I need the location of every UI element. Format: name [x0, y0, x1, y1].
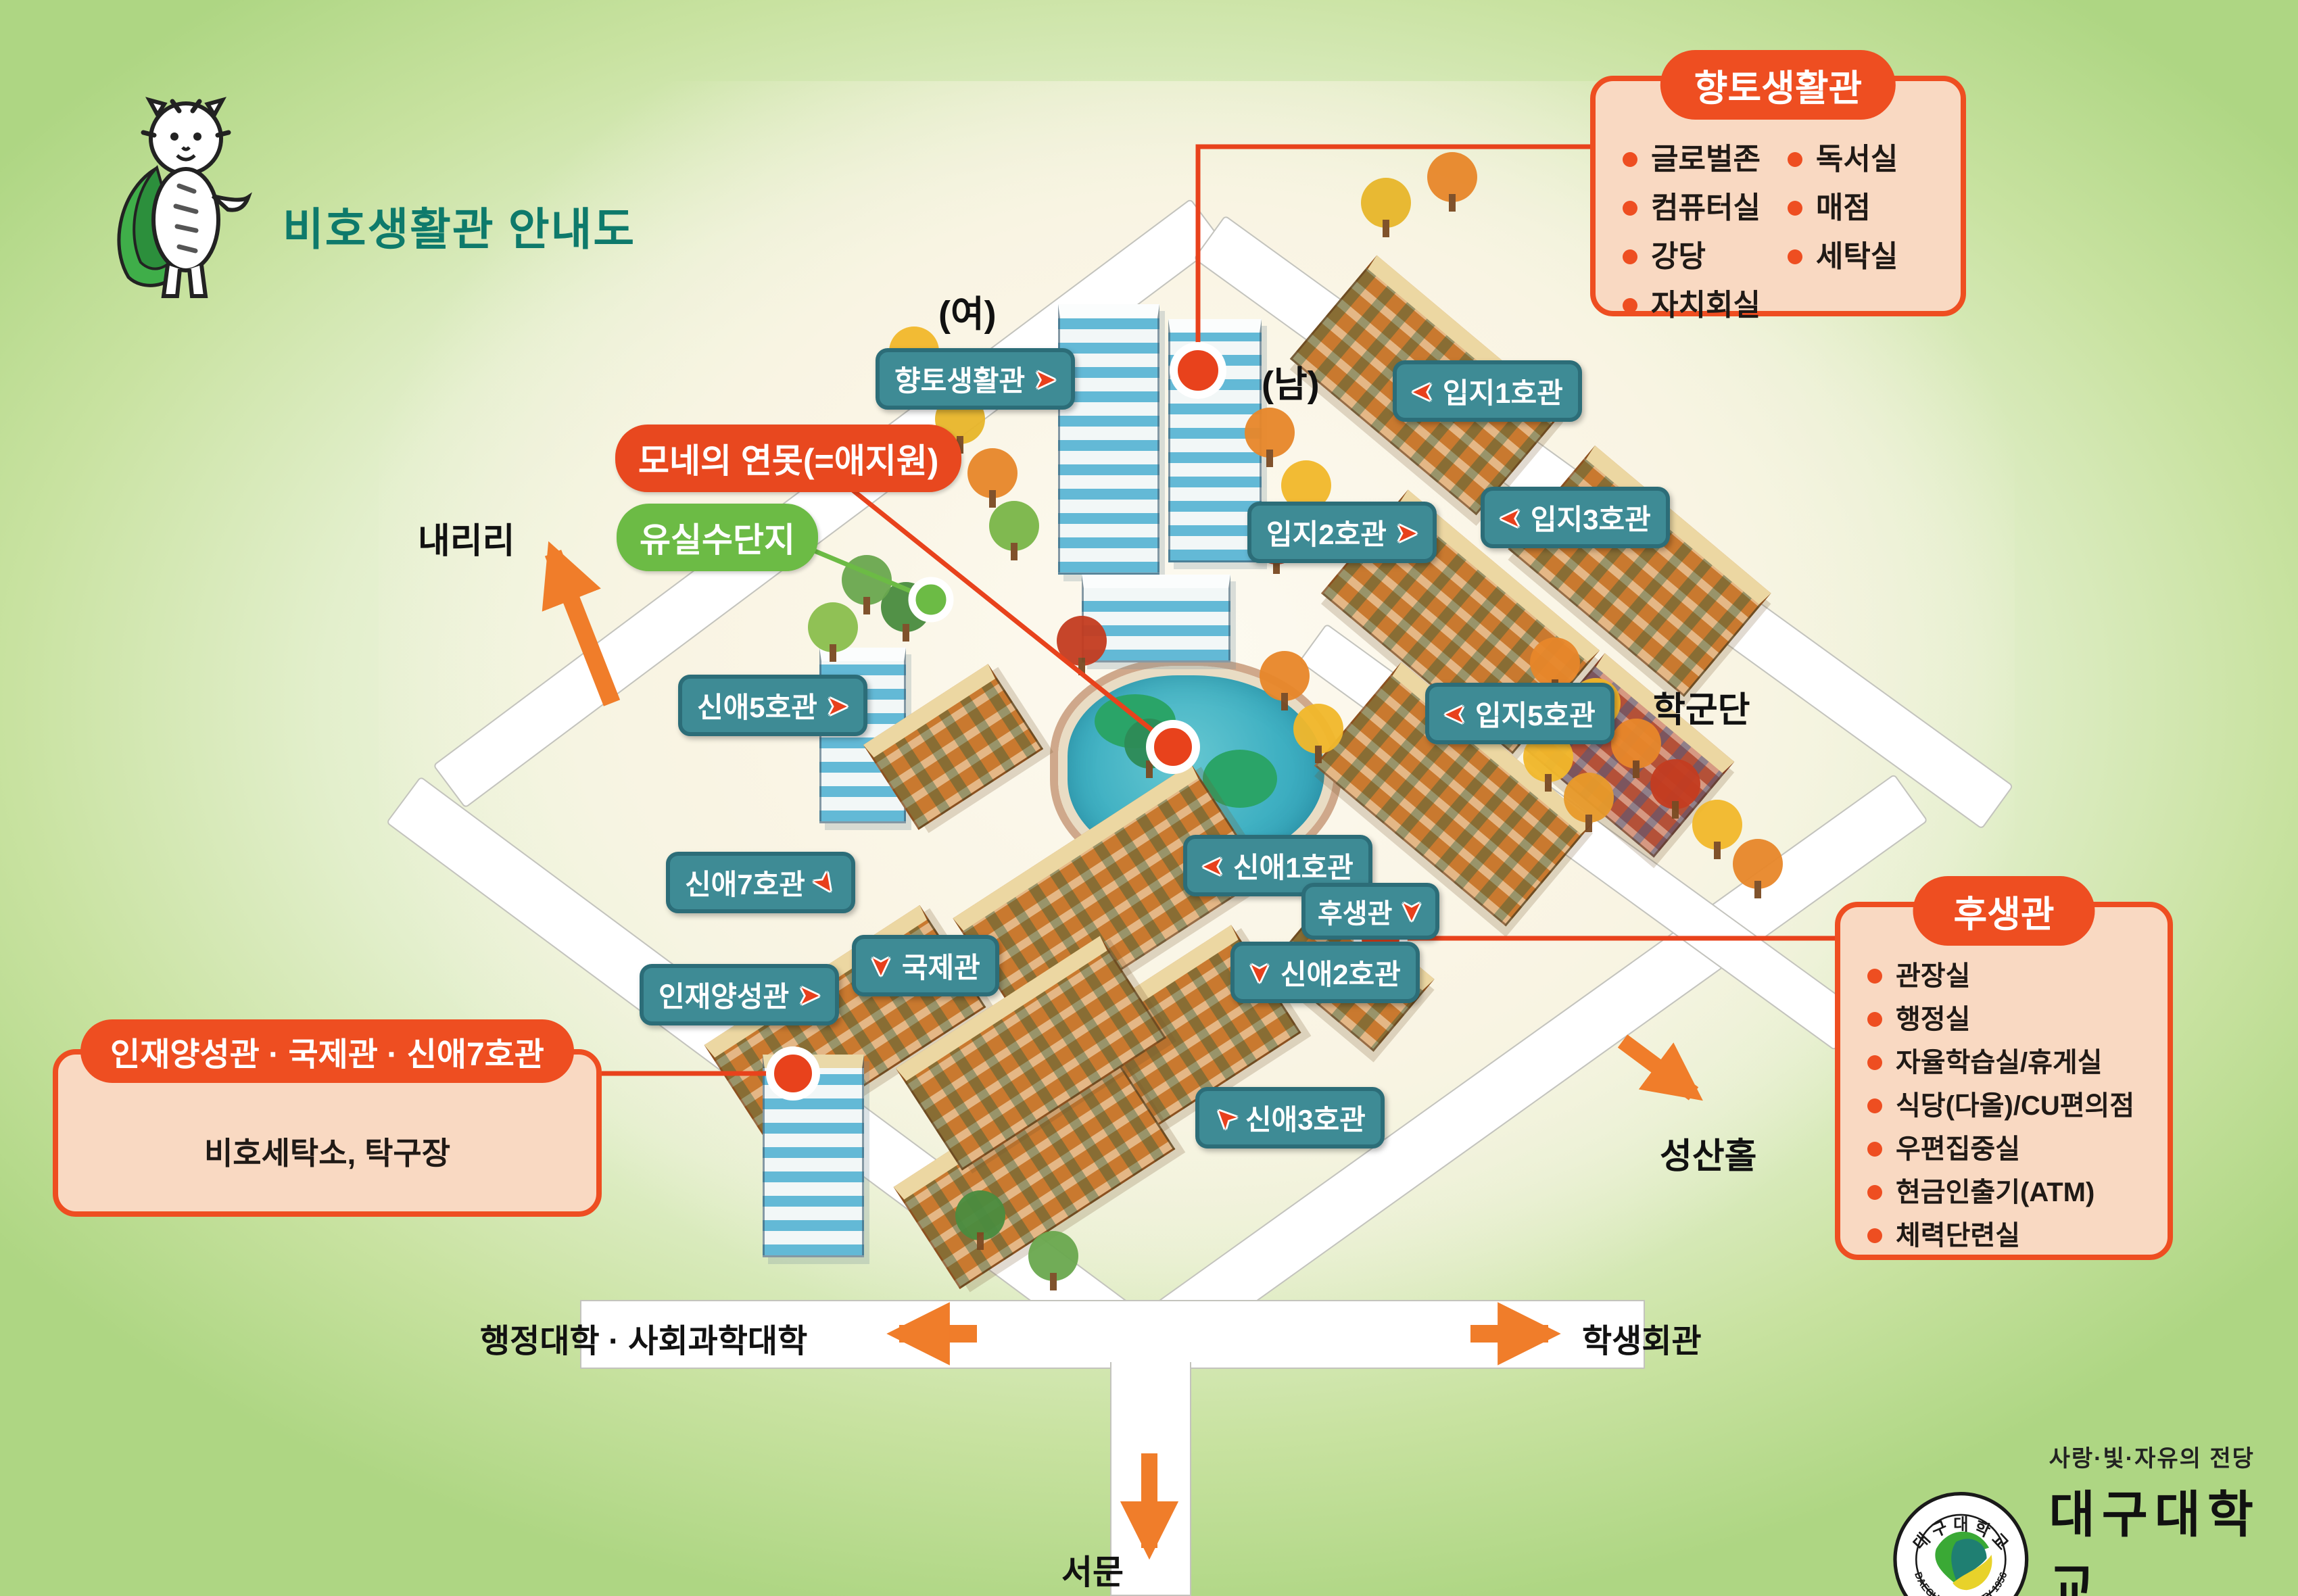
label-ipji1-text: 입지1호관: [1443, 370, 1563, 412]
pointer-down-icon: ➤: [869, 955, 894, 977]
university-logo: 대 구 대 학 교 DAEGU UNIVERSITY 1956 사랑·빛·자유의…: [1890, 1440, 2298, 1596]
label-hakgundan: 학군단: [1653, 681, 1750, 732]
dot-pond: [1150, 724, 1196, 770]
legend-item: 우편집중실: [1861, 1128, 2161, 1171]
legend-hyangto-title: 향토생활관: [1660, 50, 1896, 120]
legend-item: 행정실: [1861, 998, 2161, 1041]
pointer-right-icon: ➤: [1396, 520, 1418, 546]
label-sinae7-text: 신애7호관: [685, 862, 805, 903]
label-injae-text: 인재양성관: [659, 974, 789, 1015]
legend-item: 글로벌존: [1616, 135, 1761, 184]
legend-item: 자율학습실/휴게실: [1861, 1041, 2161, 1084]
pointer-down-icon: ➤: [1399, 900, 1425, 922]
pointer-left-icon: ➤: [1500, 505, 1521, 531]
pointer-right-icon: ➤: [798, 982, 820, 1008]
legend-item: 자치회실: [1616, 281, 1761, 330]
legend-item: 강당: [1616, 233, 1761, 281]
label-male: (남): [1262, 354, 1320, 408]
dot-hyangto: [1174, 346, 1222, 395]
label-hyangto: 향토생활관➤: [876, 348, 1075, 410]
label-sinae5-text: 신애5호관: [697, 685, 817, 726]
legend-injae-note: 비호세탁소, 탁구장: [58, 1129, 596, 1174]
label-seongsanhall: 성산홀: [1660, 1128, 1757, 1178]
label-gukje-text: 국제관: [902, 945, 980, 986]
legend-item: 현금인출기(ATM): [1861, 1171, 2161, 1214]
pointer-left-icon: ➤: [1202, 853, 1224, 879]
label-sinae3-text: 신애3호관: [1245, 1097, 1366, 1138]
legend-injae: 인재양성관 · 국제관 · 신애7호관 비호세탁소, 탁구장: [53, 1049, 602, 1217]
pointer-down-right-icon: ➤: [809, 867, 842, 899]
legend-hyangto-items-right: 독서실매점세탁실: [1781, 135, 1898, 330]
label-orchard: 유실수단지: [617, 504, 818, 571]
legend-hyangto: 향토생활관 글로벌존컴퓨터실강당자치회실 독서실매점세탁실: [1590, 76, 1966, 316]
label-student-hall: 학생회관: [1582, 1314, 1702, 1361]
legend-husaeng-items: 관장실행정실자율학습실/휴게실식당(다올)/CU편의점우편집중실현금인출기(AT…: [1840, 907, 2168, 1257]
label-sinae2: ➤신애2호관: [1230, 942, 1420, 1003]
label-husaeng-text: 후생관: [1318, 892, 1392, 931]
label-injae: 인재양성관➤: [640, 964, 839, 1025]
label-female: (여): [938, 284, 997, 337]
page-title: 비호생활관 안내도: [283, 193, 636, 258]
legend-item: 체력단련실: [1861, 1214, 2161, 1257]
connector-pond: [832, 473, 1173, 747]
label-naeriri: 내리리: [418, 512, 515, 563]
label-ipji2-text: 입지2호관: [1266, 512, 1387, 553]
label-sinae3: ➤신애3호관: [1195, 1087, 1385, 1148]
university-slogan: 사랑·빛·자유의 전당: [2049, 1440, 2298, 1473]
pointer-left-icon: ➤: [1444, 701, 1466, 727]
pointer-right-icon: ➤: [827, 693, 848, 719]
pointer-left-icon: ➤: [1412, 379, 1433, 404]
label-west-gate: 서문: [1061, 1545, 1124, 1594]
label-ipji3: ➤입지3호관: [1481, 487, 1670, 548]
legend-hyangto-items-left: 글로벌존컴퓨터실강당자치회실: [1616, 135, 1761, 330]
university-name-ko: 대구대학교: [2049, 1474, 2298, 1596]
arrow-naeriri: [553, 553, 612, 703]
label-pond: 모네의 연못(=애지원): [615, 425, 961, 492]
legend-injae-title: 인재양성관 · 국제관 · 신애7호관: [80, 1019, 574, 1083]
legend-husaeng: 후생관 관장실행정실자율학습실/휴게실식당(다올)/CU편의점우편집중실현금인출…: [1835, 902, 2173, 1260]
pointer-right-icon: ➤: [1034, 366, 1056, 392]
legend-item: 매점: [1781, 184, 1898, 233]
legend-item: 세탁실: [1781, 233, 1898, 281]
campus-map-poster: 비호생활관 안내도 향토생활관➤ ➤입지1호관 입지2호관➤ ➤입지3호관 ➤입…: [0, 0, 2298, 1596]
connector-hyangto: [1198, 147, 1596, 370]
label-sinae1-text: 신애1호관: [1233, 845, 1354, 886]
label-ipji3-text: 입지3호관: [1531, 497, 1651, 538]
legend-item: 식당(다올)/CU편의점: [1861, 1084, 2161, 1128]
label-sinae5: 신애5호관➤: [678, 675, 867, 736]
label-ipji5: ➤입지5호관: [1425, 683, 1614, 744]
arrow-seongsan: [1623, 1041, 1694, 1094]
label-sinae7: 신애7호관➤: [666, 852, 855, 913]
label-ipji2: 입지2호관➤: [1247, 502, 1437, 563]
legend-husaeng-title: 후생관: [1913, 876, 2094, 946]
label-sinae2-text: 신애2호관: [1280, 952, 1401, 993]
tiger-mascot: [115, 88, 257, 304]
label-admin-college: 행정대학 · 사회과학대학: [480, 1314, 807, 1361]
label-gukje: ➤국제관: [852, 935, 999, 996]
pointer-down-icon: ➤: [1247, 962, 1273, 984]
university-seal: 대 구 대 학 교 DAEGU UNIVERSITY 1956: [1890, 1478, 2032, 1596]
legend-item: 관장실: [1861, 954, 2161, 998]
label-husaeng: 후생관➤: [1301, 883, 1439, 940]
label-ipji1: ➤입지1호관: [1393, 360, 1582, 422]
label-ipji5-text: 입지5호관: [1475, 693, 1596, 734]
dot-injae: [770, 1050, 816, 1096]
dot-orchard: [912, 581, 950, 619]
label-hyangto-text: 향토생활관: [894, 358, 1025, 400]
pointer-up-left-icon: ➤: [1208, 1101, 1241, 1134]
legend-item: 독서실: [1781, 135, 1898, 184]
legend-item: 컴퓨터실: [1616, 184, 1761, 233]
